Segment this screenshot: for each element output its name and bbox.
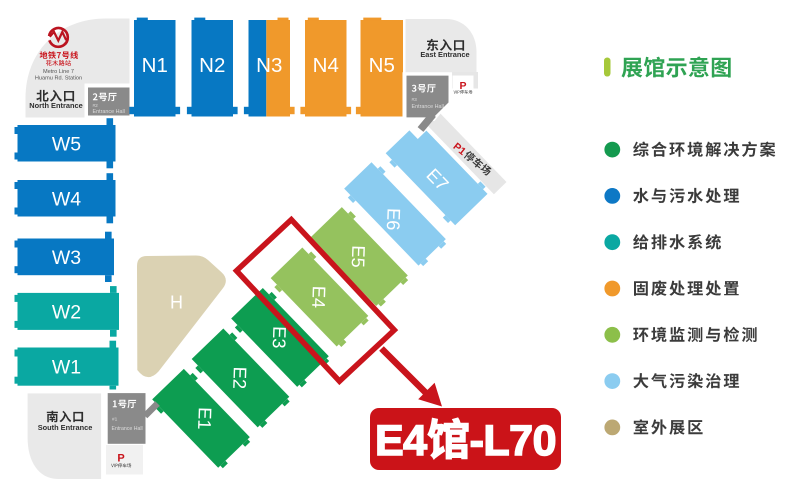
svg-text:North Entrance: North Entrance bbox=[29, 101, 82, 110]
svg-text:N1: N1 bbox=[142, 54, 168, 77]
svg-text:Entrance Hall: Entrance Hall bbox=[412, 104, 444, 110]
svg-text:E3: E3 bbox=[269, 326, 291, 349]
svg-text:Entrance Hall: Entrance Hall bbox=[112, 426, 143, 432]
svg-text:E5: E5 bbox=[348, 245, 370, 268]
svg-text:W5: W5 bbox=[52, 133, 81, 155]
svg-text:-L70: -L70 bbox=[470, 417, 556, 465]
svg-text:N3: N3 bbox=[256, 54, 282, 77]
svg-text:E6: E6 bbox=[383, 208, 405, 231]
svg-text:N4: N4 bbox=[313, 54, 339, 77]
svg-text:#1: #1 bbox=[112, 416, 118, 422]
svg-text:W4: W4 bbox=[52, 188, 81, 210]
svg-text:Entrance Hall: Entrance Hall bbox=[93, 109, 125, 115]
svg-text:E4: E4 bbox=[375, 417, 427, 465]
svg-text:#2: #2 bbox=[93, 103, 99, 109]
svg-text:South Entrance: South Entrance bbox=[38, 423, 93, 432]
svg-text:H: H bbox=[170, 293, 183, 313]
svg-text:P: P bbox=[117, 453, 124, 465]
svg-text:Huamu Rd. Station: Huamu Rd. Station bbox=[35, 75, 82, 81]
svg-text:#3: #3 bbox=[412, 97, 418, 103]
svg-text:E1: E1 bbox=[194, 407, 216, 430]
svg-text:W2: W2 bbox=[52, 301, 81, 323]
svg-text:P: P bbox=[459, 80, 466, 92]
svg-text:N2: N2 bbox=[199, 54, 225, 77]
svg-text:W3: W3 bbox=[52, 247, 81, 269]
svg-text:Metro Line 7: Metro Line 7 bbox=[43, 69, 74, 75]
svg-text:N5: N5 bbox=[369, 54, 395, 77]
svg-text:W1: W1 bbox=[52, 357, 81, 379]
svg-text:E2: E2 bbox=[229, 366, 251, 389]
svg-text:East Entrance: East Entrance bbox=[420, 50, 469, 59]
svg-text:E4: E4 bbox=[308, 285, 330, 308]
